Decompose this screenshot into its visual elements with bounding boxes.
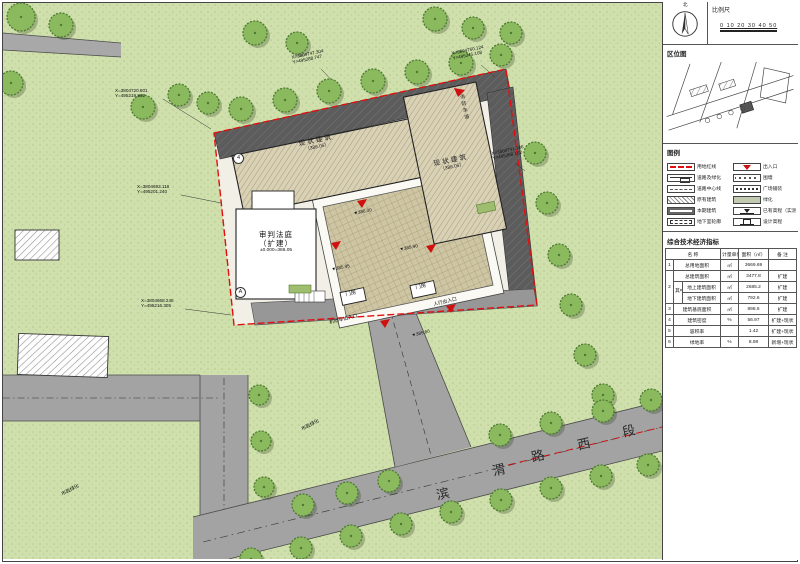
legend-item: 设计高程 [731, 216, 796, 227]
axis-marker-4: 4 [233, 153, 244, 164]
scale-label: 比例尺 [712, 5, 794, 14]
coord-y: Y=495201.240 [137, 189, 167, 194]
court-extension: （扩建） [259, 239, 293, 248]
cell-name: 建筑密度 [674, 315, 721, 326]
red-line-icon [667, 163, 695, 171]
location-map-sketch [666, 60, 794, 138]
legend-label: 广场铺装 [763, 185, 782, 192]
legend-item: 围墙 [731, 172, 796, 183]
legend-label: 地下室轮廓 [697, 218, 721, 225]
table-row: 其中 地上建筑面积 ㎡ 2685.2 扩建 [666, 282, 797, 293]
cell-name: 总用地面积 [674, 260, 721, 271]
table-row: 1 总用地面积 ㎡ 3669.69 [666, 260, 797, 271]
cell-unit: % [721, 315, 739, 326]
cell-no: 4 [666, 315, 674, 326]
legend-title: 图例 [663, 144, 798, 159]
cell-name: 建筑基底面积 [674, 304, 721, 315]
cell-unit [721, 326, 739, 337]
coord-x: X=3804668.245 [141, 298, 174, 303]
cell-note: 扩建 [769, 282, 797, 293]
coord-y: Y=495219.862 [115, 93, 145, 98]
coord-x: X=3804720.801 [115, 88, 148, 93]
title-block-panel: 北 比例尺 0 10 20 30 40 50 区位图 [662, 2, 798, 560]
centerline-icon [667, 185, 695, 193]
legend-label: 道路及绿化 [697, 174, 721, 181]
entrance-icon [733, 163, 761, 171]
location-map-section: 区位图 [663, 45, 798, 144]
col-note: 备 注 [769, 249, 797, 260]
table-row: 地下建筑面积 ㎡ 792.6 扩建 [666, 293, 797, 304]
north-scale-section: 北 比例尺 0 10 20 30 40 50 [663, 2, 798, 45]
cell-unit: ㎡ [721, 293, 739, 304]
legend-item: 广场铺装 [731, 183, 796, 194]
table-row: 5 容积率 1.42 扩建+现状 [666, 326, 797, 337]
cell-unit: ㎡ [721, 271, 739, 282]
cell-area: 898.6 [739, 304, 769, 315]
scale-ticks: 0 10 20 30 40 50 [720, 23, 777, 32]
legend-item: 本期建筑 [665, 205, 730, 216]
location-map-title: 区位图 [663, 45, 798, 60]
legend-label: 出入口 [763, 163, 777, 170]
table-row: 6 绿地率 % 8.98 新增+现状 [666, 337, 797, 348]
cell-no: 2 [666, 271, 674, 304]
plan-svg [3, 3, 662, 559]
legend-label: 道路中心线 [697, 185, 721, 192]
cell-no: 3 [666, 304, 674, 315]
legend-item: 道路及绿化 [665, 172, 730, 183]
legend-label: 本期建筑 [697, 207, 716, 214]
legend-label: 绿化 [763, 196, 773, 203]
cell-area: 792.6 [739, 293, 769, 304]
cell-note: 扩建 [769, 293, 797, 304]
legend-label: 用地红线 [697, 163, 716, 170]
new-building-icon [667, 207, 695, 215]
north-arrow-icon [669, 7, 701, 39]
court-level: ±0.000=386.05 [245, 248, 307, 254]
cell-no: 6 [666, 337, 674, 348]
table-row: 3 建筑基底面积 ㎡ 898.6 扩建 [666, 304, 797, 315]
paving-icon [733, 185, 761, 193]
site-plan-canvas: X=3804747.304Y=495288.747 X=3804760.124Y… [3, 3, 662, 559]
cell-note: 扩建+现状 [769, 315, 797, 326]
cell-no: 1 [666, 260, 674, 271]
cell-area: 2685.2 [739, 282, 769, 293]
legend-item: 出入口 [731, 161, 796, 172]
indicators-title: 综合技术经济指标 [663, 232, 798, 248]
cell-area: 1.42 [739, 326, 769, 337]
existing-building-icon [667, 196, 695, 204]
table-header-row: 名 称 计量单位 面积（㎡） 备 注 [666, 249, 797, 260]
cell-unit: % [721, 337, 739, 348]
cell-note [769, 260, 797, 271]
cell-note: 新增+现状 [769, 337, 797, 348]
scale-bar: 比例尺 0 10 20 30 40 50 [708, 2, 798, 44]
cell-area: 56.97 [739, 315, 769, 326]
coordinate-callout: X=3804720.801Y=495219.862 [115, 88, 148, 99]
existing-elevation-icon [733, 207, 761, 215]
site-plan-drawing: X=3804747.304Y=495288.747 X=3804760.124Y… [0, 0, 800, 564]
cell-name: 地上建筑面积 [683, 282, 721, 293]
basement-outline-icon [667, 218, 695, 226]
cell-note: 扩建 [769, 271, 797, 282]
cell-note: 扩建+现状 [769, 326, 797, 337]
legend-item: 道路中心线 [665, 183, 730, 194]
axis-marker-a: A [235, 287, 246, 298]
cell-no: 5 [666, 326, 674, 337]
cell-name: 总建筑面积 [674, 271, 721, 282]
fence-icon [733, 174, 761, 182]
road-green-icon [667, 174, 695, 182]
north-arrow: 北 [663, 2, 708, 44]
cell-note: 扩建 [769, 304, 797, 315]
table-row: 4 建筑密度 % 56.97 扩建+现状 [666, 315, 797, 326]
col-unit: 计量单位 [721, 249, 739, 260]
coordinate-callout: X=3804693.118Y=495201.240 [137, 184, 169, 195]
legend-section: 图例 用地红线 出入口 道路及绿化 围墙 道路中心线 广场铺装 原有建筑 绿化 … [663, 144, 798, 232]
court-building-label: 审判法庭 （扩建） ±0.000=386.05 [245, 231, 307, 254]
cell-group: 其中 [674, 282, 683, 304]
legend-label: 围墙 [763, 174, 773, 181]
cell-name: 容积率 [674, 326, 721, 337]
legend-grid: 用地红线 出入口 道路及绿化 围墙 道路中心线 广场铺装 原有建筑 绿化 本期建… [663, 159, 798, 231]
legend-item: 绿化 [731, 194, 796, 205]
cell-unit: ㎡ [721, 282, 739, 293]
cell-unit: ㎡ [721, 304, 739, 315]
cell-area: 3477.8 [739, 271, 769, 282]
indicators-table: 名 称 计量单位 面积（㎡） 备 注 1 总用地面积 ㎡ 3669.69 2 总… [665, 248, 797, 348]
coord-y: Y=495216.305 [141, 303, 171, 308]
coordinate-callout: X=3804668.245Y=495216.305 [141, 298, 174, 309]
cell-area: 3669.69 [739, 260, 769, 271]
cell-name: 绿地率 [674, 337, 721, 348]
cell-name: 地下建筑面积 [683, 293, 721, 304]
legend-label: 原有建筑 [697, 196, 716, 203]
coord-x: X=3804693.118 [137, 184, 169, 189]
legend-item: 用地红线 [665, 161, 730, 172]
legend-label: 已有高程（实测） [763, 207, 796, 214]
location-map [663, 60, 798, 143]
greenery-icon [733, 196, 761, 204]
north-label: 北 [683, 2, 688, 8]
design-elevation-icon [733, 218, 761, 226]
col-area: 面积（㎡） [739, 249, 769, 260]
legend-label: 设计高程 [763, 218, 782, 225]
cell-unit: ㎡ [721, 260, 739, 271]
legend-item: 已有高程（实测） [731, 205, 796, 216]
col-name: 名 称 [666, 249, 721, 260]
legend-item: 地下室轮廓 [665, 216, 730, 227]
legend-item: 原有建筑 [665, 194, 730, 205]
indicators-section: 综合技术经济指标 名 称 计量单位 面积（㎡） 备 注 1 总用地面积 ㎡ 36… [663, 232, 798, 348]
table-row: 2 总建筑面积 ㎡ 3477.8 扩建 [666, 271, 797, 282]
cell-area: 8.98 [739, 337, 769, 348]
